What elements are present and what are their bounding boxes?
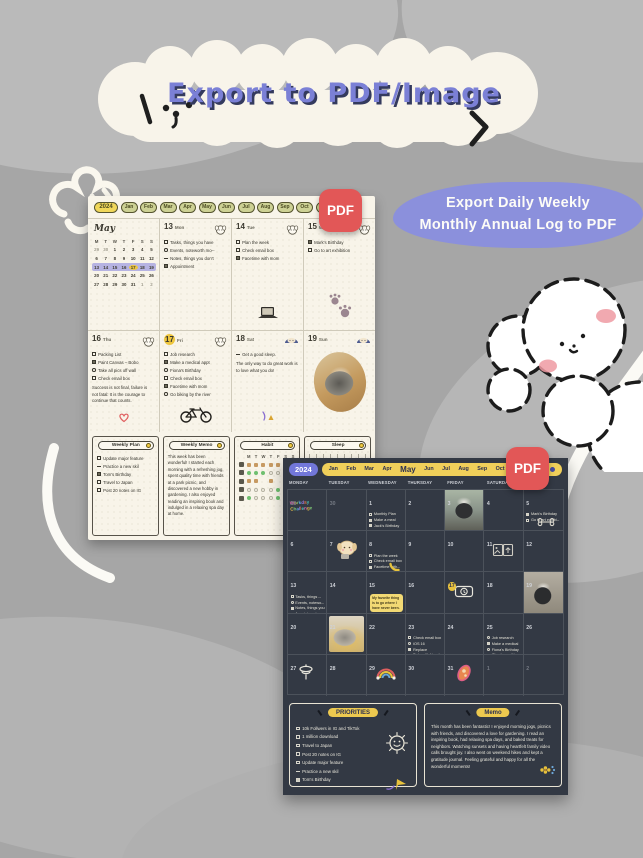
weekly-day-items: Tasks, things you haveEvents, noteworth … (164, 238, 228, 270)
habit-cell[interactable] (246, 479, 252, 483)
item-mark-box[interactable] (296, 735, 300, 739)
smiley-sticker-icon (359, 443, 364, 448)
habit-cell[interactable] (260, 463, 266, 467)
calendar-cell-4[interactable]: 4 (484, 490, 523, 531)
cell-date-number: 4 (487, 501, 490, 507)
weekly-day-number: 15 (308, 222, 317, 231)
calendar-cell-14[interactable]: 14 (327, 572, 366, 613)
todo-item-text: Tom's Birthday (103, 472, 131, 477)
todo-item-text: Update major feature (103, 456, 143, 461)
habit-cell[interactable] (253, 488, 259, 492)
rainbow-sticker (375, 667, 397, 685)
weekly-day-19[interactable]: 19Sun (304, 331, 375, 432)
pdf-badge-label: PDF (327, 203, 354, 218)
month-tab-apr[interactable]: Apr (382, 466, 391, 472)
habit-cell[interactable] (268, 488, 274, 492)
todo-item[interactable]: Go biking by the river (164, 390, 228, 398)
mini-calendar-date[interactable]: 1 (138, 282, 147, 287)
calendar-cell-2[interactable]: 2 (524, 655, 563, 696)
item-mark-dash[interactable] (296, 771, 300, 772)
weekly-day-17[interactable]: 17FriJob researchMake a medical apptFion… (160, 331, 232, 432)
cell-date-number: 8 (369, 542, 372, 548)
item-mark-dash[interactable] (97, 466, 101, 467)
calendar-cell-27[interactable]: 27 (288, 655, 327, 696)
todo-item[interactable]: Facetime with mom (164, 382, 228, 390)
sun-smiley-icon (384, 730, 410, 761)
cell-items: Job researchMake a medicalFiona's Birthd… (487, 635, 522, 655)
cell-date-number: 12 (526, 542, 532, 548)
mini-calendar-date[interactable]: 27 (92, 282, 101, 287)
item-mark-boxcheck[interactable] (164, 384, 168, 388)
item-mark-boxcheck[interactable] (92, 360, 96, 364)
cell-date-number: 23 (408, 625, 414, 631)
cell-date-number: 19 (526, 583, 532, 589)
habit-cell[interactable] (253, 463, 259, 467)
item-mark-boxcheck[interactable] (308, 240, 312, 244)
todo-item[interactable]: Update major feature (97, 454, 155, 462)
mini-calendar-date[interactable]: 29 (110, 282, 119, 287)
todo-item[interactable]: Events, noteworth mo-- (164, 246, 228, 254)
mini-calendar-day-header: M (92, 239, 101, 244)
mini-calendar-date[interactable]: 1 (110, 247, 119, 252)
item-mark-box[interactable] (296, 744, 300, 748)
mini-calendar-day-header: T (119, 239, 128, 244)
todo-item[interactable]: Travel to Japan (97, 478, 155, 486)
todo-item-text: Fiona's Birthday (170, 368, 201, 373)
todo-item-text: Travel to Japan (103, 480, 132, 485)
cat-basket-sticker-icon (284, 334, 299, 352)
item-mark-box[interactable] (291, 595, 294, 598)
habit-dot-x (247, 479, 251, 483)
calendar-cell-10[interactable]: 10 (445, 531, 484, 572)
item-mark-boxcheck[interactable] (526, 513, 529, 516)
todo-item[interactable]: Tom's Birthday (97, 470, 155, 478)
weekday-header: MONDAY (287, 480, 327, 485)
calendar-cell-8[interactable]: 8Plan the weekCheck email boxFacetime wi… (367, 531, 406, 572)
item-mark-boxcheck[interactable] (296, 778, 300, 782)
subtitle-line2: Monthly Annual Log to PDF (419, 215, 616, 237)
calendar-cell-26[interactable]: 26 (524, 614, 563, 655)
weekly-day-number: 19 (308, 334, 317, 343)
month-tab-jun[interactable]: Jun (424, 466, 434, 472)
todo-item[interactable]: Go to art exhibition (308, 246, 372, 254)
todo-item-text: Check email box (98, 376, 130, 381)
calendar-cell-24[interactable]: 24 (445, 614, 484, 655)
todo-item-text: Plan the week (242, 240, 269, 245)
todo-item[interactable]: Fiona's Birthday (164, 366, 228, 374)
habit-cell[interactable] (275, 496, 281, 500)
item-mark-box[interactable] (526, 519, 529, 522)
todo-item-text: iOS 16 (413, 642, 425, 646)
cell-date-number: 16 (408, 583, 414, 589)
weekly-memo-card-title[interactable]: Weekly Memo (169, 441, 225, 450)
item-mark-boxcheck[interactable] (97, 472, 101, 476)
habit-cell[interactable] (260, 471, 266, 475)
calendar-cell-29[interactable]: 29WorkdayChallenge (288, 490, 327, 531)
month-tab-mar[interactable]: Mar (364, 466, 374, 472)
todo-item[interactable]: Make a medical appt (164, 358, 228, 366)
mini-calendar-date[interactable]: 20 (92, 273, 101, 278)
calendar-cell-25[interactable]: 25Job researchMake a medicalFiona's Birt… (484, 614, 523, 655)
item-mark-box[interactable] (369, 513, 372, 516)
calendar-cell-28[interactable]: 28 (327, 655, 366, 696)
month-pill-sep[interactable]: Sep (277, 202, 294, 213)
todo-item[interactable]: Facetime with mom (236, 254, 300, 262)
calendar-cell-23[interactable]: 23Check email boxiOS 16ReplaceDate with … (406, 614, 445, 655)
weekday-header: THURSDAY (406, 480, 446, 485)
smiley-sticker-icon (288, 443, 293, 448)
todo-item-text: Post 20 notes on IG (103, 488, 141, 493)
habit-cell[interactable] (268, 479, 274, 483)
habit-cell[interactable] (246, 488, 252, 492)
todo-item[interactable]: Take all pics off wall (92, 366, 156, 374)
calendar-cell-2[interactable]: 2 (406, 490, 445, 531)
pdf-badge-monthly[interactable]: PDF (506, 447, 549, 490)
mini-calendar-date[interactable]: 21 (101, 273, 110, 278)
item-mark-dash[interactable] (408, 648, 411, 651)
todo-item[interactable]: Check email box (92, 374, 156, 382)
item-mark-box[interactable] (236, 240, 240, 244)
habit-cell[interactable] (246, 463, 252, 467)
month-tab-jul[interactable]: Jul (442, 466, 450, 472)
mini-calendar-date[interactable]: 23 (119, 273, 128, 278)
habit-cell[interactable] (260, 488, 266, 492)
todo-item-text: Make a medical appt (170, 360, 210, 365)
todo-item[interactable]: Check email box (236, 246, 300, 254)
item-mark-boxcheck[interactable] (164, 360, 168, 364)
item-mark-box[interactable] (92, 376, 96, 380)
calendar-cell-11[interactable]: 11 (484, 531, 523, 572)
habit-dot-o (276, 471, 280, 475)
habit-dot-x (254, 479, 258, 483)
calendar-cell-16[interactable]: 16 (406, 572, 445, 613)
calendar-cell-7[interactable]: 7 (327, 531, 366, 572)
mini-calendar-date[interactable]: 31 (129, 282, 138, 287)
weekly-day-header: 16Thu (92, 334, 156, 346)
month-pill-apr[interactable]: Apr (179, 202, 196, 213)
item-mark-box[interactable] (97, 480, 101, 484)
smiley-sticker-icon (217, 443, 222, 448)
calendar-cell-20[interactable]: 20 (288, 614, 327, 655)
item-mark-boxcheck[interactable] (369, 524, 372, 527)
todo-item[interactable]: Paint Canvas – Bobo (92, 358, 156, 366)
item-mark-circle[interactable] (487, 636, 490, 639)
mini-calendar-date[interactable]: 26 (147, 273, 156, 278)
todo-item-text: Plan the week (374, 554, 398, 558)
month-pill-jan[interactable]: Jan (121, 202, 138, 213)
month-tab-jan[interactable]: Jan (329, 466, 338, 472)
heart-icon (118, 410, 130, 428)
cell-date-number: 29 (291, 501, 297, 507)
mini-calendar-date[interactable]: 8 (110, 256, 119, 261)
habit-cell[interactable] (275, 471, 281, 475)
mini-calendar-date[interactable]: 11 (138, 256, 147, 261)
habit-dot-x (276, 463, 280, 467)
habit-cell[interactable] (246, 471, 252, 475)
item-mark-circle[interactable] (487, 648, 490, 651)
habit-icon (239, 470, 244, 475)
month-pill-jun[interactable]: Jun (218, 202, 235, 213)
month-tab-may[interactable]: May (400, 465, 416, 474)
calendar-cell-21[interactable]: 21 (327, 614, 366, 655)
calendar-cell-15[interactable]: 15My favorite thing is to go where I hav… (367, 572, 406, 613)
weekly-day-13[interactable]: 13MonTasks, things you haveEvents, notew… (160, 219, 232, 330)
mini-calendar-date[interactable]: 28 (101, 282, 110, 287)
mini-calendar-date[interactable]: 9 (119, 256, 128, 261)
item-mark-box[interactable] (97, 488, 101, 492)
mini-calendar-date[interactable]: 29 (92, 247, 101, 252)
habit-card-title[interactable]: Habit (240, 441, 296, 450)
calendar-cell-31[interactable]: 31 (445, 655, 484, 696)
cat-basket-photo (329, 616, 363, 652)
mini-calendar-date[interactable]: 12 (147, 256, 156, 261)
mini-calendar-date[interactable]: 30 (101, 247, 110, 252)
habit-dot-g (247, 471, 251, 475)
item-mark-box[interactable] (296, 761, 300, 765)
mini-calendar-date[interactable]: 7 (101, 256, 110, 261)
calendar-cell-17[interactable]: 17 (445, 572, 484, 613)
todo-item-text: Events, noteworth mo-- (170, 248, 214, 253)
item-mark-boxcheck[interactable] (369, 566, 372, 569)
habit-cell[interactable] (246, 496, 252, 500)
calendar-cell-3[interactable]: 3 (445, 490, 484, 531)
item-mark-box[interactable] (164, 240, 168, 244)
calendar-cell-22[interactable]: 22 (367, 614, 406, 655)
year-pill[interactable]: 2024 (94, 202, 118, 213)
item-mark-boxcheck[interactable] (369, 519, 372, 522)
calendar-cell-1[interactable]: 1 (484, 655, 523, 696)
mini-calendar-date[interactable]: 15 (110, 265, 119, 270)
cell-date-number: 21 (330, 625, 336, 631)
cell-date-number: 27 (291, 666, 297, 672)
item-mark-box[interactable] (236, 248, 240, 252)
calendar-cell-1[interactable]: 1Monthly PlanMake a mealJack's BirthdayC… (367, 490, 406, 531)
habit-day-header: T (253, 454, 259, 459)
dog-face-icon (286, 222, 299, 240)
item-mark-boxcheck[interactable] (487, 642, 490, 645)
mini-calendar-date[interactable]: 30 (119, 282, 128, 287)
mini-calendar-date[interactable]: 18 (138, 265, 147, 270)
year-pill[interactable]: 2024 (289, 463, 318, 476)
todo-item-text: Tom's Birthday (302, 777, 331, 782)
item-mark-box[interactable] (97, 456, 101, 460)
calendar-cell-19[interactable]: 19 (524, 572, 563, 613)
mini-calendar-date[interactable]: 5 (147, 247, 156, 252)
mini-calendar-date[interactable]: 19 (147, 265, 156, 270)
todo-item-text: Notes, things you don't (170, 256, 214, 261)
month-pill-mar[interactable]: Mar (160, 202, 177, 213)
item-mark-box[interactable] (164, 376, 168, 380)
item-mark-dash[interactable] (164, 258, 168, 259)
cell-date-number: 1 (369, 501, 372, 507)
todo-item[interactable]: Post 20 notes on IG (97, 486, 155, 494)
item-mark-box[interactable] (408, 636, 411, 639)
screenshot-canvas: Export to PDF/Image Export Daily Weekly … (0, 0, 643, 858)
habit-dot-o (261, 496, 265, 500)
item-mark-box[interactable] (369, 554, 372, 557)
item-mark-box[interactable] (296, 727, 300, 731)
bone-sticker (536, 514, 556, 531)
todo-item-text: Events, notewo-- (295, 601, 324, 605)
weekly-plan-card-title[interactable]: Weekly Plan (98, 441, 154, 450)
todo-item-text: 1 million download (302, 734, 338, 739)
todo-item[interactable]: Notes, things you don't (164, 254, 228, 262)
todo-item-text: Travel to Japan (302, 743, 332, 748)
mini-calendar-date[interactable]: 25 (138, 273, 147, 278)
mini-calendar-day-header: T (101, 239, 110, 244)
weekly-day-number: 16 (92, 334, 101, 343)
mini-calendar-date[interactable]: 16 (119, 265, 128, 270)
item-mark-circle[interactable] (164, 392, 168, 396)
habit-cell[interactable] (275, 488, 281, 492)
calendar-cell-5[interactable]: 5Mark's BirthdayGo to art exhibi-- (524, 490, 563, 531)
item-mark-box[interactable] (369, 560, 372, 563)
cell-date-number: 30 (330, 501, 336, 507)
item-mark-box[interactable] (164, 352, 168, 356)
mini-calendar-date[interactable]: 14 (101, 265, 110, 270)
month-tab-feb[interactable]: Feb (346, 466, 356, 472)
item-mark-box[interactable] (92, 352, 96, 356)
month-tab-aug[interactable]: Aug (458, 466, 468, 472)
memo-box: Memo This month has been fantastic! I en… (424, 703, 562, 787)
mini-calendar-date[interactable]: 4 (138, 247, 147, 252)
habit-cell[interactable] (275, 463, 281, 467)
habit-cell[interactable] (260, 496, 266, 500)
habit-day-header: M (246, 454, 252, 459)
todo-item-text: Facetime with mom (242, 256, 279, 261)
calendar-cell-13[interactable]: 13Tasks, things --Events, notewo--Notes,… (288, 572, 327, 613)
habit-cell[interactable] (253, 479, 259, 483)
weekly-memo-text: This week has been wonderful! I started … (168, 454, 226, 518)
mini-calendar-date[interactable]: 3 (129, 247, 138, 252)
habit-icon (239, 479, 244, 484)
item-mark-box[interactable] (308, 248, 312, 252)
todo-item-text: Take all pics off wall (98, 368, 136, 373)
speech-bubble-note: My favorite thing is to go where I have … (370, 594, 403, 612)
todo-item-text: Check email box (413, 636, 441, 640)
calendar-cell-6[interactable]: 6 (288, 531, 327, 572)
sleep-card-title[interactable]: Sleep (310, 441, 366, 450)
habit-cell[interactable] (268, 471, 274, 475)
todo-item-text: Update major feature (302, 760, 343, 765)
month-tab-oct[interactable]: Oct (496, 466, 505, 472)
habit-dot-g (276, 496, 280, 500)
dog-illustration (482, 266, 643, 472)
cell-items: Check email boxiOS 16ReplaceDate with fr… (408, 635, 443, 655)
month-tab-sep[interactable]: Sep (477, 466, 487, 472)
weekly-day-doodle (160, 406, 231, 428)
priorities-label: PRIORITIES (328, 708, 378, 717)
cat-basket-sticker-icon (356, 334, 371, 352)
calendar-cell-18[interactable]: 18 (484, 572, 523, 613)
item-mark-circle[interactable] (164, 368, 168, 372)
calendar-cell-12[interactable]: 12 (524, 531, 563, 572)
month-pill-may[interactable]: May (199, 202, 216, 213)
todo-item-text: Make a meal (374, 518, 396, 522)
mini-calendar-day-headers: MTWTFSS (92, 237, 156, 246)
habit-cell[interactable] (253, 471, 259, 475)
mini-calendar-date[interactable]: 24 (129, 273, 138, 278)
habit-cell[interactable] (268, 463, 274, 467)
habit-icon (239, 487, 244, 492)
item-mark-dash[interactable] (291, 607, 294, 610)
mini-calendar-date[interactable]: 2 (119, 247, 128, 252)
item-mark-box[interactable] (296, 752, 300, 756)
pdf-badge-weekly[interactable]: PDF (319, 189, 362, 232)
weekly-day-18[interactable]: 18SatGet a good sleep.The only way to do… (232, 331, 304, 432)
todo-item-text: Mark's Birthday (314, 240, 343, 245)
todo-item-text: Job research (170, 352, 195, 357)
mini-calendar-date[interactable]: 2 (147, 282, 156, 287)
item-mark-boxcheck[interactable] (236, 256, 240, 260)
cat-standing-photo (445, 490, 483, 530)
weekly-day-name: Fri (177, 338, 183, 343)
laptop-icon (255, 306, 281, 326)
item-mark-boxcheck[interactable] (164, 264, 168, 268)
paw-prints-icon (327, 291, 353, 326)
todo-item[interactable]: Appointment (164, 262, 228, 270)
month-pill-feb[interactable]: Feb (140, 202, 157, 213)
mini-calendar-date[interactable]: 10 (129, 256, 138, 261)
habit-cell[interactable] (253, 496, 259, 500)
cell-date-number: 2 (408, 501, 411, 507)
month-pill-aug[interactable]: Aug (257, 202, 274, 213)
calendar-cell-30[interactable]: 30 (406, 655, 445, 696)
month-pill-jul[interactable]: Jul (238, 202, 255, 213)
weekly-day-14[interactable]: 14TuePlan the weekCheck email boxFacetim… (232, 219, 304, 330)
cell-date-number: 6 (291, 542, 294, 548)
habit-cell[interactable] (268, 496, 274, 500)
weekly-day-note: The only way to do great work is to love… (236, 361, 300, 374)
item-mark-circle[interactable] (291, 601, 294, 604)
bicycle-icon (179, 406, 213, 428)
item-mark-circle[interactable] (408, 642, 411, 645)
subtitle-line1: Export Daily Weekly (446, 193, 590, 215)
calendar-cell-9[interactable]: 9 (406, 531, 445, 572)
habit-dot-o (269, 488, 273, 492)
habit-icon (239, 496, 244, 501)
item-mark-dash[interactable] (236, 354, 240, 355)
mini-calendar-date[interactable]: 17 (129, 265, 138, 270)
mini-calendar-day-header: S (138, 239, 147, 244)
photo-export-icon-sticker (492, 543, 514, 562)
mini-calendar-date[interactable]: 13 (92, 265, 101, 270)
todo-item-text: Notes, things you (295, 606, 324, 610)
habit-dot-g (261, 471, 265, 475)
weekly-day-16[interactable]: 16ThuPacking ListPaint Canvas – BoboTake… (88, 331, 160, 432)
cell-date-number: 5 (526, 501, 529, 507)
todo-item[interactable]: Practice a new skil (97, 462, 155, 470)
mini-calendar-date[interactable]: 6 (92, 256, 101, 261)
item-mark-circle[interactable] (164, 248, 168, 252)
item-mark-circle[interactable] (92, 368, 96, 372)
weekly-day-number: 14 (236, 222, 245, 231)
weekly-memo-card: Weekly MemoThis week has been wonderful!… (163, 436, 230, 536)
habit-dot-g (276, 488, 280, 492)
dog-sticker-sticker (335, 539, 359, 566)
dog-face-icon (214, 222, 227, 240)
calendar-cell-30[interactable]: 30 (327, 490, 366, 531)
weekly-day-15[interactable]: 15WedMark's BirthdayGo to art exhibition (304, 219, 375, 330)
todo-item-text: Packing List (98, 352, 121, 357)
calendar-cell-29[interactable]: 29 (367, 655, 406, 696)
mini-calendar-date[interactable]: 22 (110, 273, 119, 278)
dog-face-icon (214, 334, 227, 352)
month-pill-oct[interactable]: Oct (296, 202, 313, 213)
radio-sticker (454, 584, 474, 603)
todo-item[interactable]: Check email box (164, 374, 228, 382)
cell-date-number: 9 (408, 542, 411, 548)
